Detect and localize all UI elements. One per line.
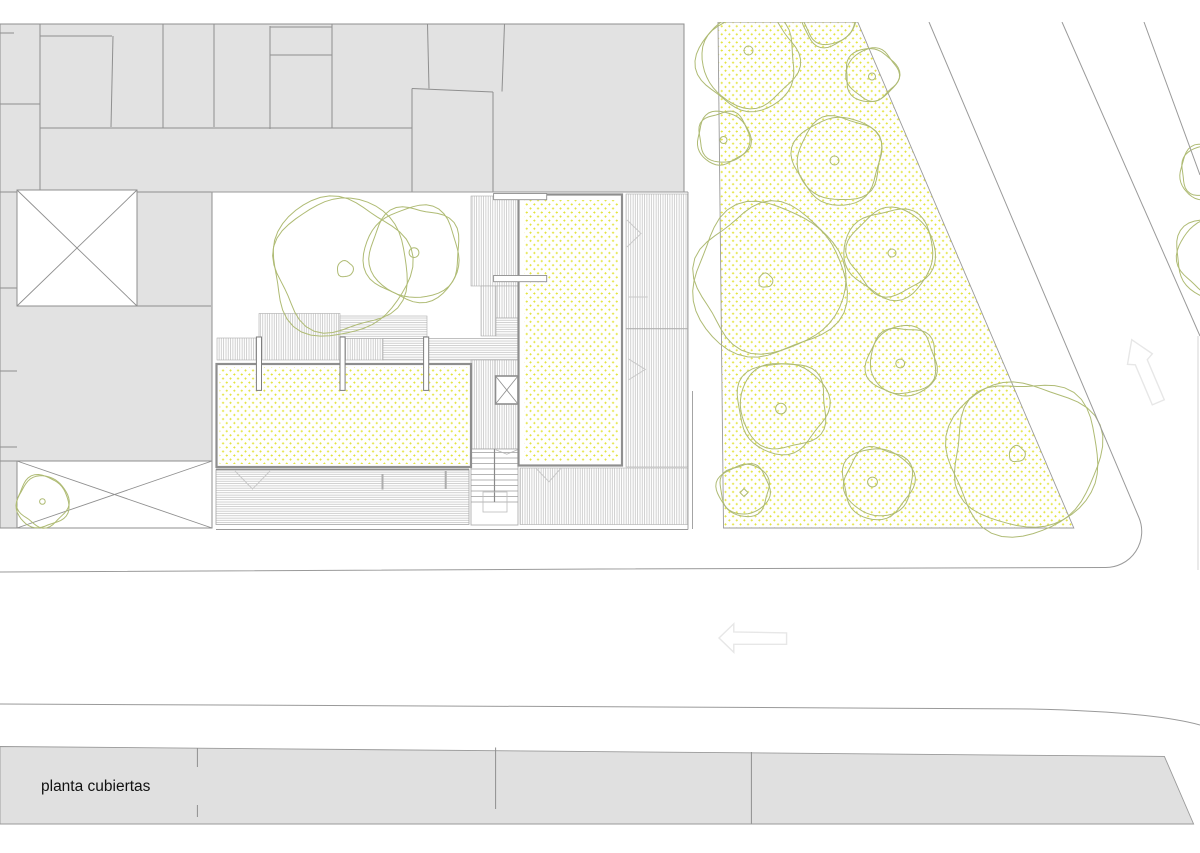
svg-text:planta cubiertas: planta cubiertas (41, 778, 151, 795)
